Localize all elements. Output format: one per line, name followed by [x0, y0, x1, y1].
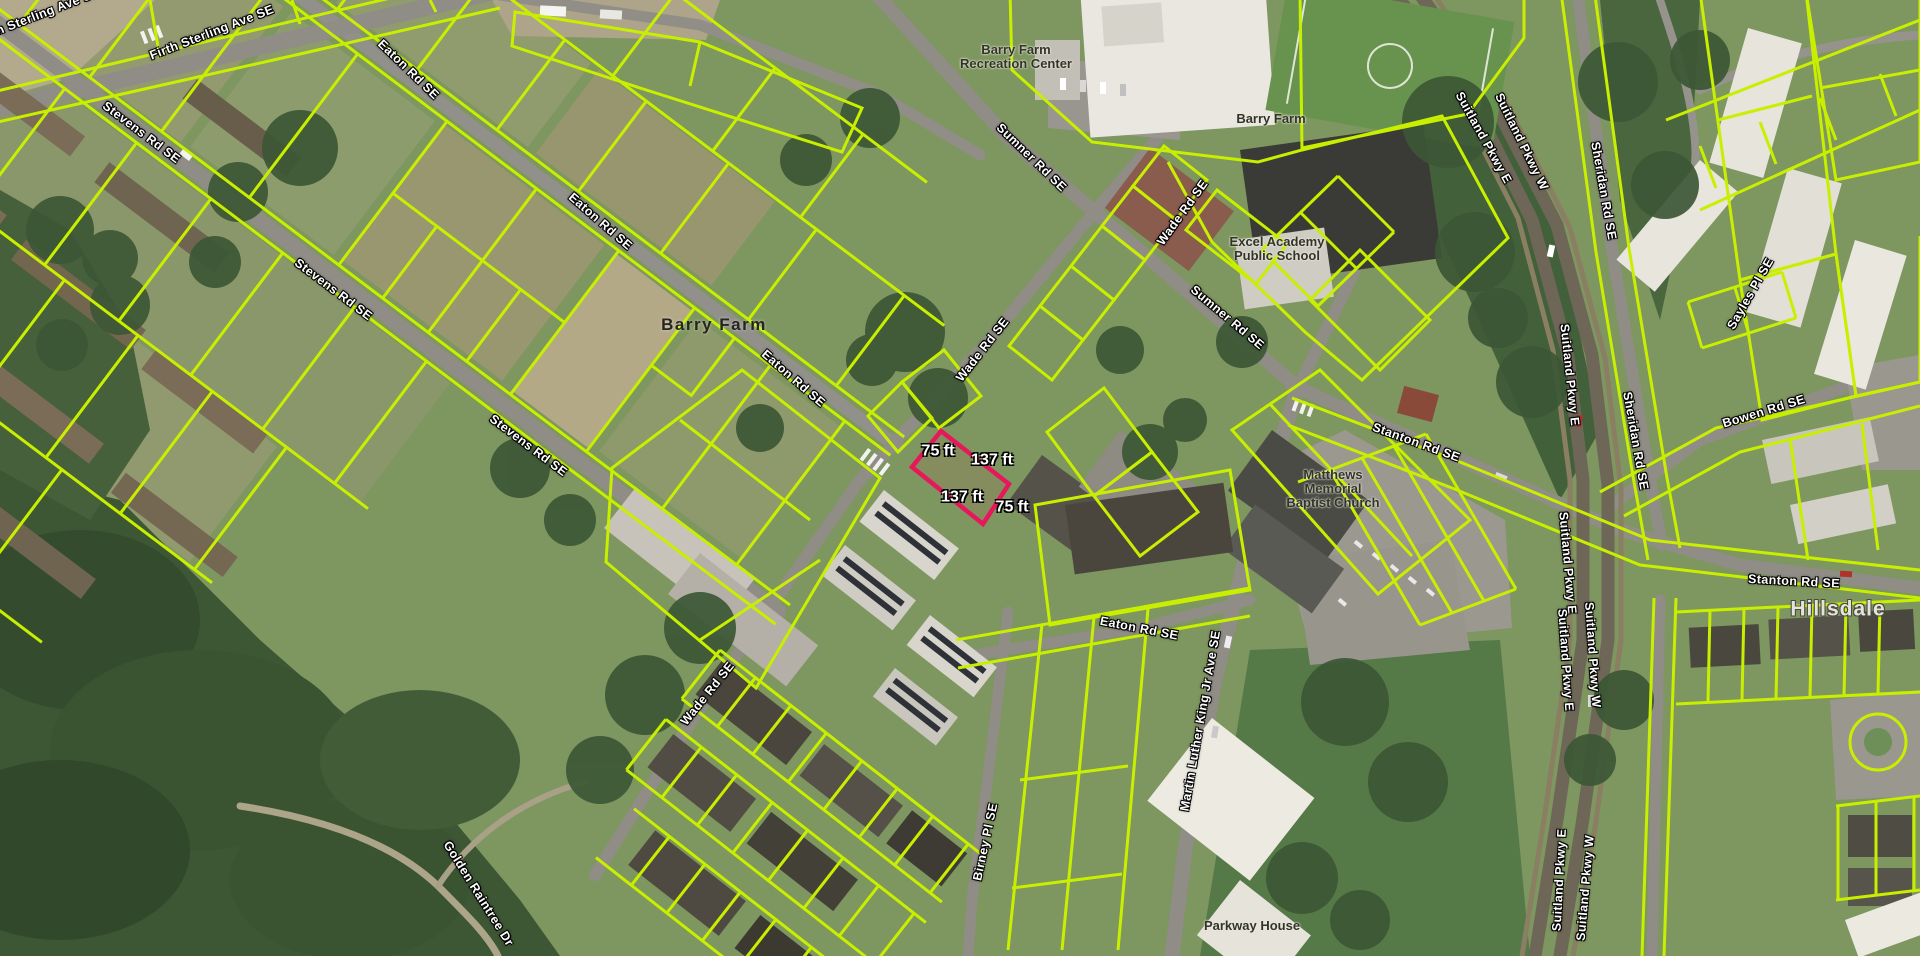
map-viewport[interactable]: Firth Sterling Ave SEFirth Sterling Ave … [0, 0, 1920, 956]
satellite-basemap [0, 0, 1920, 956]
